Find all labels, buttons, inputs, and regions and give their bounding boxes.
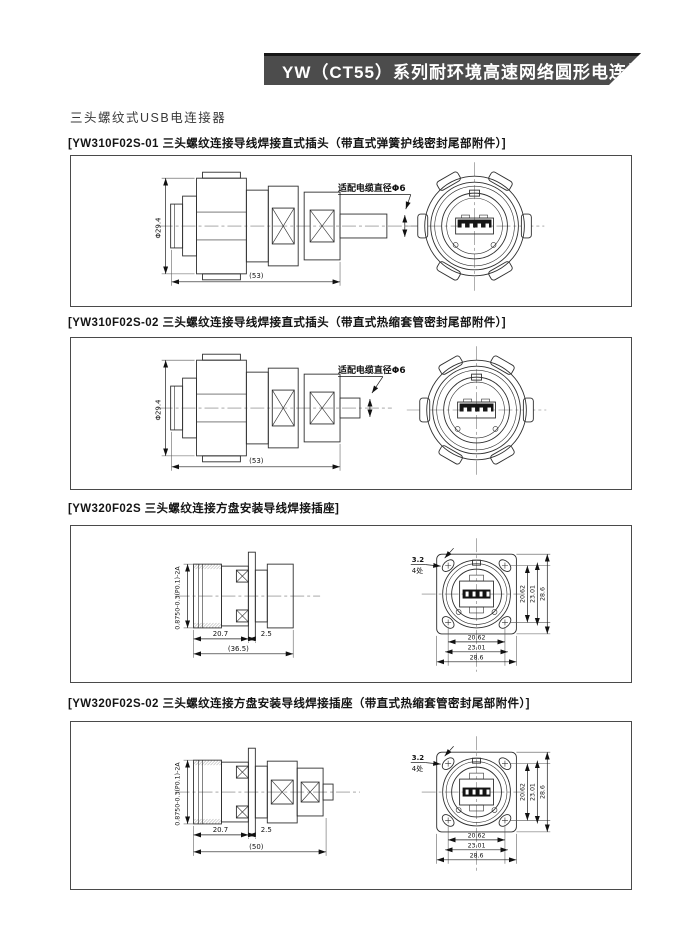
receptacle-dimensions: 0.8750-0.3(P0.1)-2A 20.7 2.5 (50) xyxy=(175,760,326,856)
plug-dimensions: Φ29.4 (53) 适配电缆直径Φ6 xyxy=(155,360,406,471)
drawing-box-3: 0.8750-0.3(P0.1)-2A 20.7 2.5 (36.5) xyxy=(70,525,632,683)
usb-port xyxy=(460,575,494,613)
dim-sq-outer-v: 28.6 xyxy=(539,587,546,601)
dim-sq-mid-v: 23.01 xyxy=(529,585,536,603)
drawing-box-4: 0.8750-0.3(P0.1)-2A 20.7 2.5 (50) xyxy=(70,721,632,890)
dim-sq-inner-v: 20.62 xyxy=(519,783,526,801)
drawing-box-2: Φ29.4 (53) 适配电缆直径Φ6 xyxy=(70,337,632,490)
plug-dimensions: Φ29.4 (53) 适配电缆直径Φ6 xyxy=(155,178,411,286)
hole-diameter: 3.2 xyxy=(412,556,424,564)
dim-front-length: 20.7 xyxy=(213,826,229,834)
dim-overall: (50) xyxy=(249,843,264,851)
dim-sq-inner-h: 20.62 xyxy=(468,634,486,641)
dim-sq-outer-h: 28.6 xyxy=(470,852,484,859)
usb-port xyxy=(460,773,494,811)
section-label-yw320f02s-02: [YW320F02S-02 三头螺纹连接方盘安装导线焊接插座（带直式热缩套管密封… xyxy=(68,695,530,711)
dim-flange-thickness: 2.5 xyxy=(261,826,272,834)
page-subtitle: 三头螺纹式USB电连接器 xyxy=(70,107,226,126)
hole-diameter: 3.2 xyxy=(412,754,424,762)
dim-overall: (36.5) xyxy=(228,645,249,653)
dim-sq-mid-h: 23.01 xyxy=(468,842,486,849)
dim-thread: 0.8750-0.3(P0.1)-2A xyxy=(175,762,182,826)
banner-title: YW（CT55）系列耐环境高速网络圆形电连接器 xyxy=(264,58,663,83)
section-label-yw310f02s-01: [YW310F02S-01 三头螺纹连接导线焊接直式插头（带直式弹簧护线密封尾部… xyxy=(68,135,506,151)
plug-front-view xyxy=(405,162,545,292)
dim-sq-inner-v: 20.62 xyxy=(519,585,526,603)
receptacle-dimensions: 0.8750-0.3(P0.1)-2A 20.7 2.5 (36.5) xyxy=(175,564,294,658)
receptacle-drawing-02: 0.8750-0.3(P0.1)-2A 20.7 2.5 (50) xyxy=(71,722,629,887)
receptacle-side-view xyxy=(176,552,320,640)
hole-places: 4处 xyxy=(412,764,423,773)
dim-front-length: 20.7 xyxy=(213,630,229,638)
page-banner: YW（CT55）系列耐环境高速网络圆形电连接器 xyxy=(264,53,641,85)
dim-length: (53) xyxy=(249,272,264,280)
flange-front-view: 20.62 23.01 28.6 20.62 23.01 xyxy=(411,538,550,672)
dim-flange-thickness: 2.5 xyxy=(261,630,272,638)
dim-sq-mid-v: 23.01 xyxy=(529,783,536,801)
receptacle-side-view xyxy=(176,748,360,836)
dim-sq-outer-v: 28.6 xyxy=(539,785,546,799)
dim-thread: 0.8750-0.3(P0.1)-2A xyxy=(175,566,182,630)
datasheet-page: YW（CT55）系列耐环境高速网络圆形电连接器 三头螺纹式USB电连接器 [YW… xyxy=(0,0,700,950)
section-label-yw320f02s: [YW320F02S 三头螺纹连接方盘安装导线焊接插座] xyxy=(68,500,339,516)
cable-note: 适配电缆直径Φ6 xyxy=(338,364,406,376)
dim-length: (53) xyxy=(249,457,264,465)
plug-drawing-02: Φ29.4 (53) 适配电缆直径Φ6 xyxy=(71,338,629,487)
section-label-yw310f02s-02: [YW310F02S-02 三头螺纹连接导线焊接直式插头（带直式热缩套管密封尾部… xyxy=(68,314,506,330)
hole-places: 4处 xyxy=(412,566,423,575)
plug-drawing-01: Φ29.4 (53) 适配电缆直径Φ6 xyxy=(71,156,629,304)
dim-sq-outer-h: 28.6 xyxy=(470,654,484,661)
receptacle-drawing-01: 0.8750-0.3(P0.1)-2A 20.7 2.5 (36.5) xyxy=(71,526,629,680)
cable-note: 适配电缆直径Φ6 xyxy=(338,182,406,194)
drawing-box-1: Φ29.4 (53) 适配电缆直径Φ6 xyxy=(70,155,632,307)
dim-sq-mid-h: 23.01 xyxy=(468,644,486,651)
dim-diameter: Φ29.4 xyxy=(155,399,163,421)
flange-front-view: 20.62 23.01 28.6 20.62 23.01 xyxy=(411,736,550,872)
dim-sq-inner-h: 20.62 xyxy=(468,832,486,839)
dim-diameter: Φ29.4 xyxy=(155,217,163,239)
plug-front-view xyxy=(407,346,546,476)
